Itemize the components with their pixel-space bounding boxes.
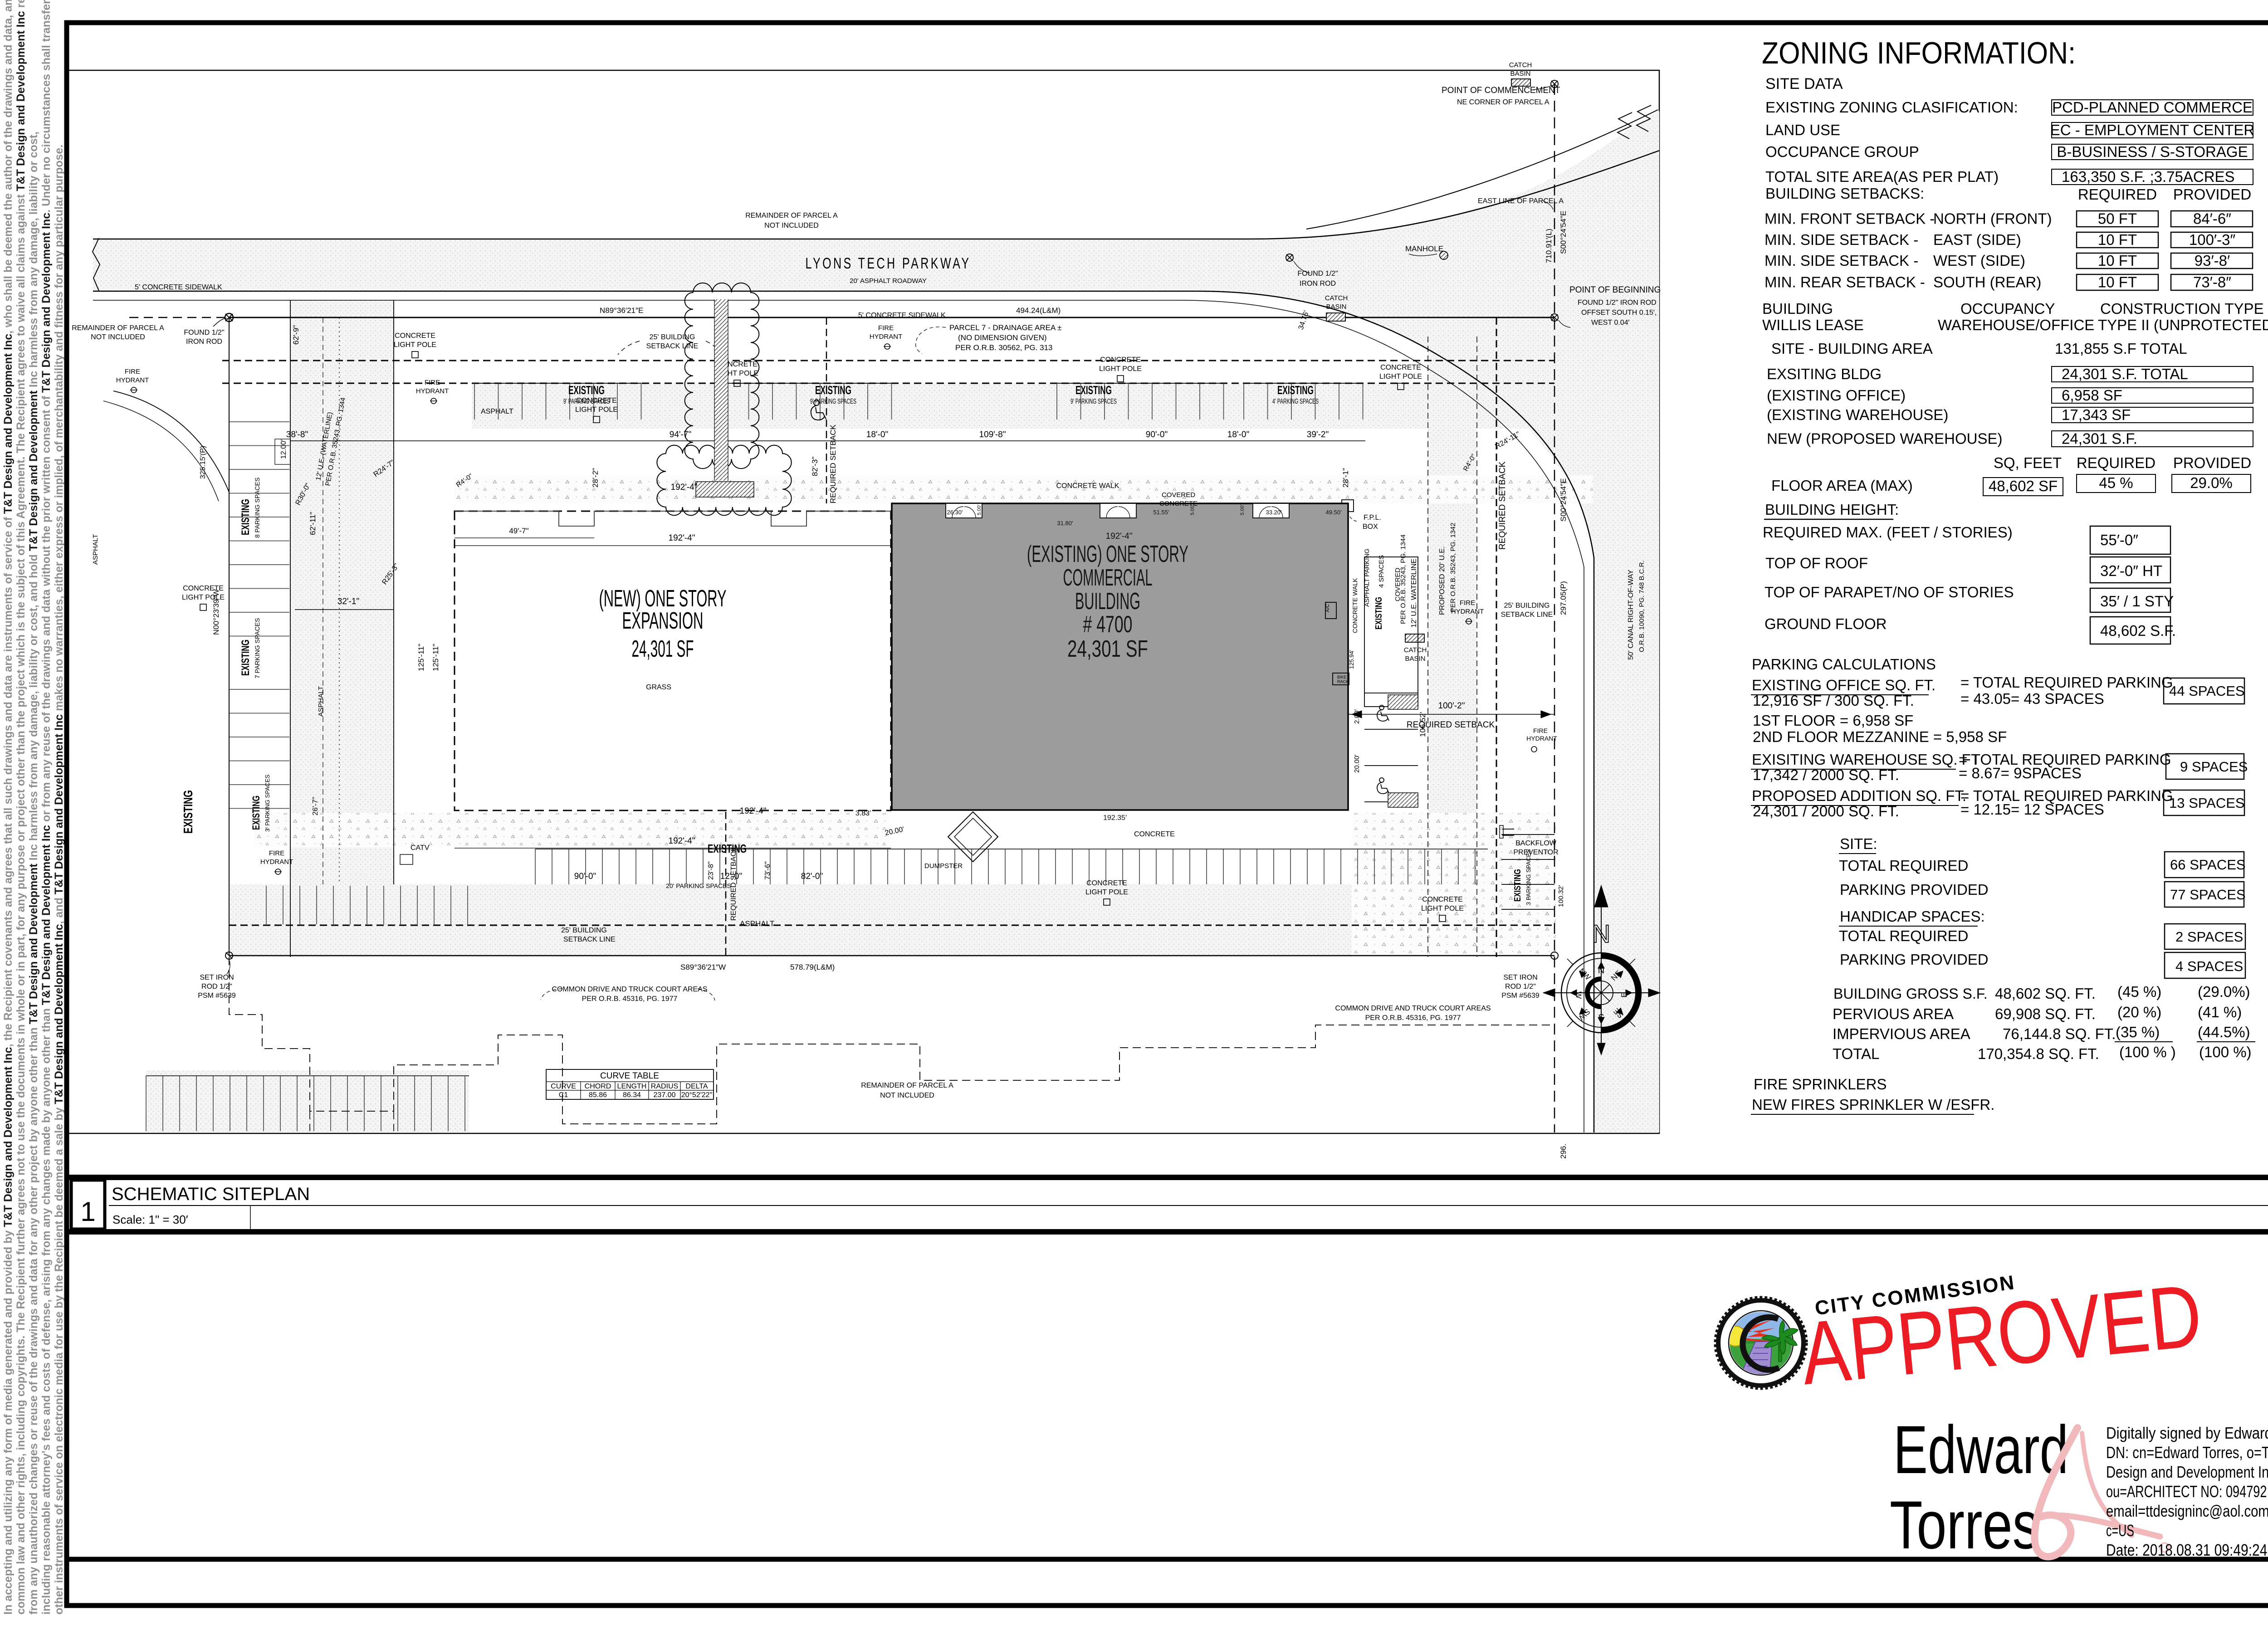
svg-text:REQUIRED SETBACK: REQUIRED SETBACK [829,425,837,503]
svg-text:EXISTING: EXISTING [240,639,252,676]
svg-text:POINT OF BEGINNING: POINT OF BEGINNING [1569,285,1661,295]
svg-text:49.50': 49.50' [1325,509,1341,516]
svg-text:CATCH: CATCH [1404,646,1427,654]
svg-text:Edward: Edward [1893,1411,2068,1488]
svg-text:FIRE: FIRE [125,368,140,376]
svg-text:LYONS TECH PARKWAY: LYONS TECH PARKWAY [806,255,971,272]
svg-text:25' BUILDING: 25' BUILDING [650,333,695,341]
svg-text:PER O.R.B. 35243, PG. 1342: PER O.R.B. 35243, PG. 1342 [1449,522,1457,612]
svg-text:CATV: CATV [411,844,430,852]
svg-text:= 43.05= 43 SPACES: = 43.05= 43 SPACES [1960,690,2104,707]
svg-text:17,342 / 2000 SQ. FT.: 17,342 / 2000 SQ. FT. [1753,766,1899,783]
svg-text:TOTAL: TOTAL [1833,1045,1879,1062]
svg-text:EXISTING: EXISTING [240,499,252,535]
svg-text:PROPOSED 20' U.E.: PROPOSED 20' U.E. [1438,546,1446,615]
svg-text:BUILDING GROSS S.F.: BUILDING GROSS S.F. [1833,986,1988,1002]
svg-text:SITE:: SITE: [1840,835,1877,852]
svg-text:20' PARKING SPACES: 20' PARKING SPACES [666,882,731,889]
svg-text:IRON ROD: IRON ROD [186,338,222,346]
svg-text:REQUIRED SETBACK: REQUIRED SETBACK [1407,720,1495,730]
svg-text:192'-4": 192'-4" [1106,532,1133,541]
svg-text:50 FT: 50 FT [2098,210,2137,227]
svg-text:100'-2": 100'-2" [1438,701,1465,711]
svg-text:N00°23′39″W: N00°23′39″W [212,589,220,635]
svg-text:C1: C1 [559,1091,568,1099]
svg-text:EXPANSION: EXPANSION [622,608,704,634]
svg-text:94'-7": 94'-7" [670,430,691,439]
svg-text:PARKING PROVIDED: PARKING PROVIDED [1840,951,1989,968]
svg-text:ASPHALT: ASPHALT [92,534,99,565]
svg-text:REQUIRED: REQUIRED [2077,454,2156,471]
svg-text:PER O.R.B. 30562, PG. 313: PER O.R.B. 30562, PG. 313 [955,343,1053,352]
svg-text:50' CANAL RIGHT-OF-WAY: 50' CANAL RIGHT-OF-WAY [1627,570,1635,660]
svg-text:(41 %): (41 %) [2198,1004,2242,1020]
svg-text:20' ASPHALT ROADWAY: 20' ASPHALT ROADWAY [850,277,927,285]
svg-text:39'-2": 39'-2" [1307,430,1329,439]
svg-text:CATCH: CATCH [1509,61,1532,69]
svg-text:28'-1": 28'-1" [1341,468,1350,488]
svg-text:1: 1 [80,1196,95,1227]
svg-text:26'-7": 26'-7" [312,797,319,815]
svg-text:MIN. SIDE SETBACK -: MIN. SIDE SETBACK - [1765,231,1918,248]
svg-text:24,301 S.F. TOTAL: 24,301 S.F. TOTAL [2062,366,2188,382]
svg-text:SETBACK LINE: SETBACK LINE [563,936,616,943]
svg-text:25' BUILDING: 25' BUILDING [561,927,607,934]
svg-text:S: S [1598,1013,1604,1023]
svg-text:125'-11": 125'-11" [417,644,425,671]
svg-text:LIGHT POLE: LIGHT POLE [1085,888,1128,896]
svg-text:REMAINDER OF PARCEL A: REMAINDER OF PARCEL A [861,1082,953,1089]
svg-text:100.32': 100.32' [1557,885,1565,907]
svg-text:SET IRON: SET IRON [1503,974,1537,981]
svg-text:LAND USE: LAND USE [1765,122,1840,138]
svg-text:EAST LINE OF PARCEL A: EAST LINE OF PARCEL A [1478,197,1564,205]
svg-text:CONCRETE: CONCRETE [1134,830,1175,838]
svg-text:WAREHOUSE/OFFICE: WAREHOUSE/OFFICE [1938,317,2094,333]
svg-text:ASPHALT: ASPHALT [317,686,325,717]
svg-text:49'-7": 49'-7" [509,527,528,535]
svg-text:including reasonable attorney': including reasonable attorney's fees and… [40,0,53,1615]
svg-text:192.35': 192.35' [1103,814,1127,822]
svg-text:297.05(P): 297.05(P) [1559,581,1568,615]
svg-text:8 PARKING SPACES: 8 PARKING SPACES [254,478,261,538]
svg-text:SOUTH (REAR): SOUTH (REAR) [1933,274,2041,291]
svg-text:131,855 S.F TOTAL: 131,855 S.F TOTAL [2055,340,2187,357]
svg-text:125.94′: 125.94′ [1348,649,1355,669]
svg-text:= TOTAL REQUIRED PARKING: = TOTAL REQUIRED PARKING [1960,674,2173,691]
svg-text:90'-0": 90'-0" [1146,430,1168,439]
svg-text:ZONING INFORMATION:: ZONING INFORMATION: [1762,36,2076,70]
svg-text:HYDRANT: HYDRANT [260,858,293,866]
svg-text:(20 %): (20 %) [2117,1004,2161,1020]
svg-text:c=US: c=US [2106,1521,2134,1540]
svg-text:BACKFLOW: BACKFLOW [1515,839,1557,847]
svg-text:LIGHT POLE: LIGHT POLE [1421,905,1464,913]
svg-text:CONCRETE WALK: CONCRETE WALK [1056,482,1119,490]
svg-text:TOTAL REQUIRED: TOTAL REQUIRED [1839,857,1968,874]
svg-text:28'-2": 28'-2" [591,468,600,488]
svg-text:EXISTING: EXISTING [250,796,262,830]
svg-text:578.79(L&M): 578.79(L&M) [790,963,835,971]
svg-text:170,354.8 SQ. FT.: 170,354.8 SQ. FT. [1978,1045,2099,1062]
svg-text:ROD 1/2": ROD 1/2" [201,983,232,991]
svg-text:REQUIRED SETBACK: REQUIRED SETBACK [1498,461,1507,550]
svg-text:SITE - BUILDING AREA: SITE - BUILDING AREA [1771,340,1933,357]
svg-text:24,301 S.F.: 24,301 S.F. [2062,430,2137,447]
svg-text:PROVIDED: PROVIDED [2173,454,2251,471]
svg-text:BIKE: BIKE [1337,675,1347,679]
svg-text:26.30': 26.30' [947,509,963,516]
svg-text:WEST (SIDE): WEST (SIDE) [1933,252,2025,269]
svg-text:5' CONCRETE SIDEWALK: 5' CONCRETE SIDEWALK [135,283,222,291]
svg-text:2ND FLOOR MEZZANINE = 5,958 SF: 2ND FLOOR MEZZANINE = 5,958 SF [1753,728,2007,745]
svg-text:494.24(L&M): 494.24(L&M) [1016,306,1061,315]
svg-text:710.91′(L): 710.91′(L) [1545,229,1553,263]
svg-text:73'-6": 73'-6" [764,861,772,880]
svg-text:33.20': 33.20' [1266,509,1281,516]
svg-text:4 SPACES: 4 SPACES [2175,958,2243,974]
svg-text:48,602 SF: 48,602 SF [1989,478,2058,494]
svg-text:NOT INCLUDED: NOT INCLUDED [880,1092,934,1099]
svg-text:OFFSET SOUTH 0.15′,: OFFSET SOUTH 0.15′, [1581,309,1657,317]
svg-text:93′-8′: 93′-8′ [2195,252,2230,269]
svg-text:SQ, FEET: SQ, FEET [1994,454,2062,471]
svg-text:125'-11": 125'-11" [431,644,440,671]
svg-text:SITE DATA: SITE DATA [1765,75,1843,93]
svg-text:CONCRETE: CONCRETE [1086,879,1127,887]
svg-text:192'-4": 192'-4" [669,533,695,543]
svg-text:(100 % ): (100 % ) [2119,1044,2176,1060]
svg-text:51.55': 51.55' [1153,509,1169,516]
svg-text:12,916 SF / 300 SQ. FT.: 12,916 SF / 300 SQ. FT. [1753,692,1914,709]
svg-text:24,301 SF: 24,301 SF [632,636,694,662]
svg-text:W: W [1574,991,1583,999]
svg-text:2 SPACES: 2 SPACES [2175,929,2243,945]
svg-text:31.80': 31.80' [1057,520,1073,527]
svg-text:TOTAL REQUIRED: TOTAL REQUIRED [1839,927,1968,944]
svg-text:S00°24′54″E: S00°24′54″E [1559,211,1568,254]
svg-text:TOP OF PARAPET/NO OF STORIES: TOP OF PARAPET/NO OF STORIES [1765,584,2014,600]
svg-text:76,144.8 SQ. FT.: 76,144.8 SQ. FT. [2003,1025,2116,1042]
svg-text:12.00′: 12.00′ [280,439,288,459]
svg-text:DELTA: DELTA [685,1083,708,1090]
svg-text:(NO DIMENSION GIVEN): (NO DIMENSION GIVEN) [958,333,1047,342]
svg-text:BOX: BOX [1363,523,1378,531]
svg-text:44 SPACES: 44 SPACES [2169,683,2245,699]
svg-text:10 FT: 10 FT [2098,274,2137,291]
svg-text:109'-8": 109'-8" [979,430,1006,439]
svg-text:COMMERCIAL: COMMERCIAL [1063,565,1153,591]
svg-text:WEST 0.04′: WEST 0.04′ [1591,319,1630,327]
svg-text:73′-8″: 73′-8″ [2193,274,2231,291]
svg-text:5.00': 5.00' [977,504,982,515]
svg-text:SETBACK LINE: SETBACK LINE [646,342,699,350]
svg-text:CONCRETE: CONCRETE [1100,356,1141,364]
svg-text:N: N [1598,966,1604,976]
svg-text:BASIN: BASIN [1510,70,1530,78]
svg-text:CONCRETE: CONCRETE [1380,364,1421,371]
svg-text:PSM #5639: PSM #5639 [1501,992,1540,1000]
svg-text:FOUND 1/2": FOUND 1/2" [184,329,224,337]
svg-text:Digitally signed by Edward Tor: Digitally signed by Edward Torres [2106,1424,2268,1442]
svg-text:common law and other rights, i: common law and other rights, including c… [15,0,27,1615]
svg-text:COVERED: COVERED [1162,491,1195,499]
svg-text:LIGHT POLE: LIGHT POLE [575,406,618,414]
svg-text:SETBACK LINE: SETBACK LINE [1501,611,1553,619]
svg-text:NORTH (FRONT): NORTH (FRONT) [1933,210,2052,227]
svg-text:POINT OF COMMENCEMENT: POINT OF COMMENCEMENT [1442,86,1560,95]
svg-text:FIRE: FIRE [1460,599,1475,607]
svg-text:45 %: 45 % [2099,474,2133,491]
svg-text:HANDICAP SPACES:: HANDICAP SPACES: [1840,908,1985,925]
svg-text:PER O.R.B. 45316, PG. 1977: PER O.R.B. 45316, PG. 1977 [1365,1014,1461,1022]
svg-text:62'-11": 62'-11" [308,512,317,536]
svg-text:EAST (SIDE): EAST (SIDE) [1933,231,2021,248]
svg-text:TYPE II (UNPROTECTED): TYPE II (UNPROTECTED) [2098,317,2268,333]
svg-text:A/C: A/C [1325,604,1330,612]
svg-text:BUILDING HEIGHT:: BUILDING HEIGHT: [1765,501,1899,518]
svg-text:PSM #5639: PSM #5639 [198,992,236,1000]
svg-text:PROPOSED ADDITION SQ. FT.: PROPOSED ADDITION SQ. FT. [1752,787,1966,804]
svg-text:9' PARKING SPACES: 9' PARKING SPACES [1070,398,1117,405]
svg-text:237.00: 237.00 [654,1091,676,1099]
svg-text:25' BUILDING: 25' BUILDING [1504,602,1550,610]
svg-text:GROUND FLOOR: GROUND FLOOR [1765,615,1887,632]
svg-text:REQUIRED MAX. (FEET / STORIES): REQUIRED MAX. (FEET / STORIES) [1763,524,2013,541]
svg-text:38'-8": 38'-8" [286,430,308,439]
svg-text:FIRE: FIRE [425,379,440,386]
svg-text:2.00′: 2.00′ [1353,709,1361,724]
svg-text:7 PARKING SPACES: 7 PARKING SPACES [254,618,261,678]
svg-text:B-BUSINESS / S-STORAGE: B-BUSINESS / S-STORAGE [2057,143,2248,160]
svg-text:13 SPACES: 13 SPACES [2169,795,2245,811]
svg-text:BASIN: BASIN [1405,655,1425,663]
svg-text:ou=ARCHITECT NO: 094792,: ou=ARCHITECT NO: 094792, [2106,1482,2268,1501]
svg-text:CONCRETE: CONCRETE [576,397,617,405]
svg-text:6,958 SF: 6,958 SF [2062,387,2122,404]
svg-text:(EXISTING OFFICE): (EXISTING OFFICE) [1767,387,1906,404]
svg-text:77 SPACES: 77 SPACES [2170,887,2246,903]
svg-text:FIRE: FIRE [1533,727,1548,734]
svg-text:17,343 SF: 17,343 SF [2062,406,2131,423]
svg-text:FIRE: FIRE [269,849,284,857]
svg-text:55′-0″: 55′-0″ [2100,532,2138,548]
svg-text:from any unauthorized changes: from any unauthorized changes or reuse o… [27,132,40,1615]
svg-text:82'-3": 82'-3" [811,457,819,476]
svg-text:EXISTING: EXISTING [1374,597,1384,630]
svg-text:FIRE: FIRE [878,324,894,332]
svg-text:S89°36′21″W: S89°36′21″W [680,963,726,971]
svg-text:82'-0": 82'-0" [801,872,823,881]
svg-text:MIN. SIDE SETBACK -: MIN. SIDE SETBACK - [1765,252,1918,269]
svg-text:48,602 SQ. FT.: 48,602 SQ. FT. [1995,985,2096,1002]
svg-text:RACK: RACK [1337,679,1349,684]
svg-text:= 8.67= 9SPACES: = 8.67= 9SPACES [1959,765,2082,781]
svg-text:MANHOLE: MANHOLE [1405,244,1443,253]
svg-text:COVERED: COVERED [1394,568,1402,601]
svg-text:100′-3″: 100′-3″ [2189,231,2236,248]
svg-text:NOT INCLUDED: NOT INCLUDED [91,333,145,341]
svg-text:18'-0": 18'-0" [866,430,888,439]
svg-text:(EXISTING) ONE STORY: (EXISTING) ONE STORY [1027,541,1188,567]
svg-text:REQUIRED: REQUIRED [2078,186,2157,203]
svg-text:OCCUPANCY: OCCUPANCY [1960,300,2055,317]
svg-text:PER O.R.B. 45316, PG. 1977: PER O.R.B. 45316, PG. 1977 [582,995,678,1003]
svg-text:CURVE TABLE: CURVE TABLE [600,1071,659,1081]
svg-text:# 4700: # 4700 [1083,611,1133,638]
svg-text:EXISTING OFFICE SQ. FT.: EXISTING OFFICE SQ. FT. [1752,677,1936,693]
svg-text:NOT INCLUDED: NOT INCLUDED [764,222,819,229]
svg-text:CONCRETE WALK: CONCRETE WALK [1351,578,1359,633]
svg-text:(35 %): (35 %) [2116,1024,2160,1040]
svg-text:EXISTING ZONING CLASIFICATION:: EXISTING ZONING CLASIFICATION: [1765,99,2018,116]
svg-text:EXISTING: EXISTING [1277,383,1314,397]
svg-text:BUILDING SETBACKS:: BUILDING SETBACKS: [1765,185,1924,202]
svg-text:5.00': 5.00' [1240,504,1245,515]
svg-text:12' U.E. WATERLINE: 12' U.E. WATERLINE [1410,559,1418,628]
svg-text:= 12.15= 12 SPACES: = 12.15= 12 SPACES [1960,801,2104,818]
svg-text:RADIUS: RADIUS [651,1083,678,1090]
svg-text:DUMPSTER: DUMPSTER [924,862,963,870]
svg-text:4 SPACES: 4 SPACES [1378,555,1385,588]
svg-text:ROD 1/2": ROD 1/2" [1505,983,1536,991]
svg-text:24,301 / 2000 SQ. FT.: 24,301 / 2000 SQ. FT. [1753,803,1899,820]
svg-text:OCCUPANCE GROUP: OCCUPANCE GROUP [1765,143,1919,160]
svg-text:E: E [1620,992,1628,997]
svg-text:Scale: 1" = 30′: Scale: 1" = 30′ [112,1213,188,1226]
svg-text:BUILDING: BUILDING [1762,300,1833,317]
svg-text:TOP OF ROOF: TOP OF ROOF [1765,555,1868,571]
svg-text:In accepting and utilizing any: In accepting and utilizing any form of m… [2,0,15,1615]
svg-text:4' PARKING SPACES: 4' PARKING SPACES [1272,398,1319,405]
svg-text:296.: 296. [1559,1144,1568,1159]
svg-text:NE CORNER OF PARCEL A: NE CORNER OF PARCEL A [1457,98,1549,106]
svg-text:23'-8": 23'-8" [707,861,715,880]
svg-text:(100 %): (100 %) [2199,1044,2252,1060]
svg-text:CONSTRUCTION TYPE: CONSTRUCTION TYPE [2100,300,2264,317]
svg-text:other instruments of service o: other instruments of service on electron… [53,145,65,1615]
svg-text:9' PARKING SPACES: 9' PARKING SPACES [810,398,856,405]
svg-text:69,908 SQ. FT.: 69,908 SQ. FT. [1995,1005,2096,1022]
svg-text:PARCEL 7 - DRAINAGE AREA ±: PARCEL 7 - DRAINAGE AREA ± [949,323,1061,332]
svg-text:LIGHT POLE: LIGHT POLE [1099,365,1142,373]
svg-text:9 SPACES: 9 SPACES [2180,759,2248,775]
svg-text:FOUND 1/2" IRON ROD: FOUND 1/2" IRON ROD [1578,299,1657,307]
svg-text:20°52'22": 20°52'22" [681,1091,713,1099]
svg-text:BASIN: BASIN [1326,303,1346,311]
svg-text:1ST FLOOR = 6,958 SF: 1ST FLOOR = 6,958 SF [1753,712,1913,729]
svg-text:PREVENTOR: PREVENTOR [1513,849,1558,856]
svg-text:HYDRANT: HYDRANT [416,387,449,395]
svg-text:COMMON DRIVE AND TRUCK COURT A: COMMON DRIVE AND TRUCK COURT AREAS [1335,1005,1491,1012]
svg-text:20.00′: 20.00′ [1353,754,1361,773]
svg-text:N: N [1592,919,1610,948]
svg-text:CONCRETE: CONCRETE [395,332,435,340]
svg-text:Torres: Torres [1890,1487,2039,1563]
svg-text:IMPERVIOUS AREA: IMPERVIOUS AREA [1833,1025,1970,1042]
svg-text:192'-4": 192'-4" [671,483,698,492]
svg-text:GRASS: GRASS [646,683,671,691]
svg-text:HYDRANT: HYDRANT [1526,735,1557,742]
svg-text:S00°24′54″E: S00°24′54″E [1559,478,1568,522]
svg-text:29.0%: 29.0% [2190,474,2233,491]
svg-text:10 FT: 10 FT [2098,231,2137,248]
svg-text:LIGHT POLE: LIGHT POLE [394,341,436,349]
svg-text:EXISTING: EXISTING [1513,869,1523,902]
svg-text:24,301 SF: 24,301 SF [1067,636,1148,662]
svg-text:66 SPACES: 66 SPACES [2170,857,2246,873]
svg-text:ASPHALT: ASPHALT [481,408,513,415]
svg-text:CURVE: CURVE [551,1083,576,1090]
svg-text:32'-1": 32'-1" [337,597,359,606]
svg-text:N89°36′21″E: N89°36′21″E [600,306,643,315]
svg-text:LENGTH: LENGTH [617,1083,647,1090]
svg-text:EXISTING: EXISTING [568,383,605,397]
svg-text:CONCRETE: CONCRETE [1159,500,1198,508]
svg-text:HYDRANT: HYDRANT [116,376,149,384]
svg-text:EXISTING: EXISTING [815,383,851,397]
svg-text:NEW (PROPOSED WAREHOUSE): NEW (PROPOSED WAREHOUSE) [1767,430,2002,447]
svg-text:MIN. FRONT SETBACK -: MIN. FRONT SETBACK - [1765,210,1935,227]
svg-text:F.P.L.: F.P.L. [1364,514,1381,522]
svg-text:3 PARKING SPACES: 3 PARKING SPACES [1525,849,1532,905]
svg-text:192'-4": 192'-4" [669,836,695,846]
svg-text:10 FT: 10 FT [2098,252,2137,269]
svg-text:90'-0": 90'-0" [574,872,596,881]
svg-text:3' PARKING SPACES: 3' PARKING SPACES [264,774,271,832]
svg-text:BUILDING: BUILDING [1075,588,1140,615]
svg-text:EXISTING: EXISTING [708,842,747,855]
svg-text:ASPHALT PARKING: ASPHALT PARKING [1363,549,1370,607]
svg-text:O.R.B. 10090, PG. 748 B.C.R.: O.R.B. 10090, PG. 748 B.C.R. [1638,560,1646,652]
svg-text:NEW FIRES SPRINKLER W /ESFR.: NEW FIRES SPRINKLER W /ESFR. [1752,1096,1994,1113]
svg-text:86.34: 86.34 [623,1091,641,1099]
svg-text:62'-9": 62'-9" [292,325,300,345]
svg-text:EXSITING BLDG: EXSITING BLDG [1767,366,1882,382]
svg-text:FLOOR AREA (MAX): FLOOR AREA (MAX) [1771,477,1913,494]
svg-text:163,350 S.F. ;3.75ACRES: 163,350 S.F. ;3.75ACRES [2062,168,2235,185]
svg-text:Design and Development Inc.,: Design and Development Inc., [2106,1463,2268,1481]
svg-text:Date: 2018.08.31 09:49:24 -04': Date: 2018.08.31 09:49:24 -04'00' [2106,1541,2268,1559]
svg-text:CATCH: CATCH [1325,294,1348,302]
svg-text:EXISTING: EXISTING [1075,383,1112,397]
svg-text:PARKING CALCULATIONS: PARKING CALCULATIONS [1752,656,1936,673]
svg-text:12'-0": 12'-0" [720,872,742,881]
svg-text:LIGHT POLE: LIGHT POLE [1379,373,1422,381]
svg-text:email=ttdesigninc@aol.com,: email=ttdesigninc@aol.com, [2106,1502,2268,1520]
svg-text:(45 %): (45 %) [2117,983,2161,1000]
svg-text:REMAINDER OF PARCEL A: REMAINDER OF PARCEL A [72,324,164,332]
svg-text:(EXISTING WAREHOUSE): (EXISTING WAREHOUSE) [1767,406,1948,423]
svg-text:TOTAL SITE AREA(AS PER PLAT): TOTAL SITE AREA(AS PER PLAT) [1765,168,1999,185]
svg-text:18'-0": 18'-0" [1227,430,1249,439]
svg-text:REMAINDER OF PARCEL A: REMAINDER OF PARCEL A [745,212,838,220]
svg-text:PERVIOUS AREA: PERVIOUS AREA [1833,1005,1954,1022]
svg-text:EXISITING WAREHOUSE SQ. FT: EXISITING WAREHOUSE SQ. FT [1752,751,1980,768]
svg-text:CHORD: CHORD [585,1083,611,1090]
svg-text:MIN. REAR SETBACK -: MIN. REAR SETBACK - [1765,274,1925,291]
svg-text:WILLIS LEASE: WILLIS LEASE [1762,317,1864,333]
svg-text:DN: cn=Edward Torres, o=T&T: DN: cn=Edward Torres, o=T&T [2106,1443,2268,1462]
svg-text:HYDRANT: HYDRANT [870,333,903,341]
svg-text:(29.0%): (29.0%) [2198,983,2250,1000]
svg-text:84′-6″: 84′-6″ [2193,210,2231,227]
svg-text:SCHEMATIC SITEPLAN: SCHEMATIC SITEPLAN [112,1184,310,1204]
svg-text:PARKING PROVIDED: PARKING PROVIDED [1840,881,1989,898]
svg-text:FIRE SPRINKLERS: FIRE SPRINKLERS [1754,1076,1887,1093]
svg-text:48,602 S.F.: 48,602 S.F. [2100,622,2176,639]
svg-text:(44.5%): (44.5%) [2198,1024,2250,1040]
